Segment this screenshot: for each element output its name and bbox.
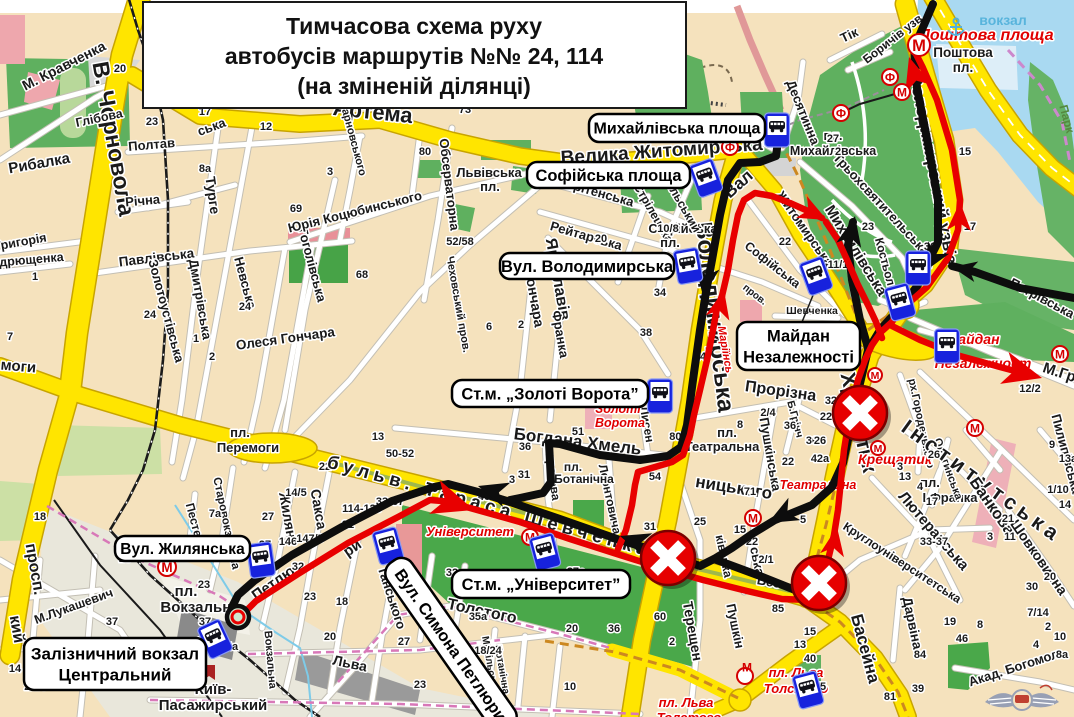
- svg-text:34: 34: [654, 287, 667, 299]
- svg-text:18: 18: [34, 511, 46, 523]
- svg-text:2: 2: [1045, 621, 1051, 633]
- svg-text:Михайлівська площа: Михайлівська площа: [594, 121, 761, 138]
- svg-text:Вул. Володимирська: Вул. Володимирська: [501, 258, 674, 276]
- svg-text:8а: 8а: [1056, 649, 1069, 661]
- svg-text:пл.: пл.: [717, 425, 737, 440]
- svg-text:60: 60: [654, 611, 666, 623]
- svg-text:21: 21: [1002, 513, 1014, 525]
- svg-text:10/8: 10/8: [657, 223, 678, 235]
- svg-text:пл.: пл.: [175, 583, 198, 600]
- svg-text:30: 30: [1026, 581, 1038, 593]
- svg-text:Вул. Жилянська: Вул. Жилянська: [120, 541, 245, 558]
- svg-text:23: 23: [304, 591, 316, 603]
- svg-text:69: 69: [290, 203, 302, 215]
- svg-text:пл.: пл.: [920, 475, 940, 490]
- svg-text:2/1: 2/1: [758, 554, 773, 566]
- svg-text:38: 38: [640, 327, 652, 339]
- svg-text:2: 2: [518, 319, 524, 331]
- svg-text:М: М: [970, 421, 980, 435]
- svg-text:50-52: 50-52: [386, 448, 414, 460]
- svg-text:Незалежності: Незалежності: [743, 348, 854, 366]
- svg-text:Річна: Річна: [125, 191, 162, 209]
- svg-text:1/10: 1/10: [1047, 484, 1068, 496]
- svg-text:24: 24: [239, 301, 252, 313]
- svg-text:3: 3: [509, 474, 515, 486]
- svg-text:31: 31: [518, 469, 530, 481]
- svg-text:3: 3: [327, 166, 333, 178]
- svg-text:15: 15: [804, 626, 816, 638]
- svg-text:42а: 42а: [811, 453, 830, 465]
- svg-text:23: 23: [198, 579, 210, 591]
- svg-text:13: 13: [794, 639, 806, 651]
- svg-text:Майдан: Майдан: [767, 327, 830, 345]
- svg-text:20: 20: [114, 63, 126, 75]
- svg-text:80: 80: [419, 146, 431, 158]
- svg-text:7а: 7а: [209, 508, 222, 520]
- svg-text:12: 12: [260, 121, 272, 133]
- svg-text:14: 14: [9, 663, 22, 675]
- svg-text:36: 36: [784, 420, 796, 432]
- svg-text:33-37: 33-37: [920, 536, 948, 548]
- svg-text:19: 19: [944, 616, 956, 628]
- svg-text:Толстого: Толстого: [657, 710, 721, 717]
- svg-text:М: М: [742, 660, 752, 674]
- svg-text:3: 3: [987, 531, 993, 543]
- svg-text:Тимчасова схема руху: Тимчасова схема руху: [286, 13, 542, 39]
- svg-text:37: 37: [106, 616, 118, 628]
- svg-text:36: 36: [519, 441, 531, 453]
- svg-text:20: 20: [595, 233, 607, 245]
- svg-text:Поштова: Поштова: [933, 45, 993, 60]
- svg-text:Пасажирський: Пасажирський: [159, 697, 268, 714]
- svg-text:27: 27: [398, 636, 410, 648]
- svg-text:40: 40: [804, 653, 816, 665]
- svg-text:8а: 8а: [199, 163, 212, 175]
- svg-text:Театральна: Театральна: [685, 439, 760, 454]
- svg-text:(на зміненій ділянці): (на зміненій ділянці): [297, 73, 531, 99]
- svg-text:2: 2: [669, 636, 675, 648]
- svg-text:14: 14: [1059, 499, 1072, 511]
- svg-text:81: 81: [884, 691, 896, 703]
- svg-text:20: 20: [1044, 571, 1056, 583]
- svg-text:пл.: пл.: [480, 179, 500, 194]
- svg-text:10: 10: [1054, 631, 1066, 643]
- svg-text:46: 46: [956, 633, 968, 645]
- svg-text:14/5: 14/5: [285, 487, 306, 499]
- svg-text:22: 22: [820, 411, 832, 423]
- svg-text:2/4: 2/4: [760, 407, 776, 419]
- svg-text:М: М: [748, 511, 758, 525]
- svg-text:27: 27: [262, 511, 274, 523]
- svg-text:18: 18: [336, 596, 348, 608]
- svg-text:54: 54: [649, 471, 662, 483]
- svg-text:Ф: Ф: [885, 70, 895, 84]
- svg-text:М: М: [897, 85, 907, 99]
- svg-text:22: 22: [782, 456, 794, 468]
- svg-text:М: М: [874, 443, 883, 455]
- svg-text:23: 23: [414, 679, 426, 691]
- svg-text:Ст.м. „Золоті Ворота”: Ст.м. „Золоті Ворота”: [461, 385, 638, 403]
- svg-text:Ворота: Ворота: [595, 416, 645, 430]
- svg-text:27: 27: [827, 133, 839, 145]
- svg-text:М: М: [912, 37, 926, 55]
- svg-text:М: М: [1055, 347, 1065, 361]
- svg-text:68: 68: [356, 269, 368, 281]
- svg-text:Театральна: Театральна: [780, 478, 857, 492]
- svg-text:Софійська площа: Софійська площа: [535, 167, 682, 185]
- svg-text:11: 11: [1004, 531, 1016, 543]
- svg-text:7: 7: [7, 331, 13, 343]
- svg-text:23: 23: [146, 116, 158, 128]
- svg-text:пл.: пл.: [953, 60, 973, 75]
- svg-text:35а: 35а: [469, 611, 488, 623]
- svg-text:М: М: [871, 370, 880, 382]
- svg-text:31: 31: [644, 521, 656, 533]
- svg-text:15: 15: [959, 146, 971, 158]
- svg-text:52/58: 52/58: [446, 236, 474, 248]
- svg-text:1: 1: [32, 271, 38, 283]
- svg-text:15: 15: [734, 524, 746, 536]
- svg-text:пл.: пл.: [230, 425, 250, 440]
- svg-text:6: 6: [486, 321, 492, 333]
- svg-text:моги: моги: [0, 357, 37, 377]
- svg-text:Шевченка: Шевченка: [786, 305, 838, 317]
- svg-text:пл. Льва: пл. Льва: [659, 695, 714, 710]
- svg-text:36: 36: [608, 623, 620, 635]
- svg-text:1: 1: [193, 333, 199, 345]
- svg-text:вокзал: вокзал: [979, 12, 1026, 28]
- svg-text:4: 4: [1033, 639, 1040, 651]
- svg-text:9: 9: [1049, 439, 1055, 451]
- svg-text:Михайлівська: Михайлівська: [790, 144, 877, 158]
- svg-text:22: 22: [779, 236, 791, 248]
- svg-text:71: 71: [744, 486, 756, 498]
- svg-text:автобусів маршрутів №№ 24, 114: автобусів маршрутів №№ 24, 114: [225, 43, 604, 69]
- svg-text:26: 26: [928, 449, 940, 461]
- svg-text:7/14: 7/14: [1027, 607, 1049, 619]
- svg-text:12/2: 12/2: [1019, 383, 1040, 395]
- svg-text:Залізничний вокзал: Залізничний вокзал: [31, 644, 199, 663]
- svg-text:Перемоги: Перемоги: [217, 440, 279, 455]
- svg-text:пл.: пл.: [660, 235, 680, 250]
- svg-text:13: 13: [899, 471, 911, 483]
- svg-text:17: 17: [926, 496, 938, 508]
- svg-text:13: 13: [372, 431, 384, 443]
- svg-text:8: 8: [977, 619, 983, 631]
- svg-text:Ф: Ф: [836, 106, 846, 120]
- svg-text:23: 23: [862, 221, 874, 233]
- svg-text:51: 51: [572, 426, 584, 438]
- svg-text:Центральний: Центральний: [59, 665, 172, 684]
- svg-text:Ст.м. „Університет”: Ст.м. „Університет”: [462, 576, 621, 594]
- svg-text:2: 2: [209, 351, 215, 363]
- svg-text:146: 146: [279, 536, 297, 548]
- svg-text:20: 20: [324, 631, 336, 643]
- svg-text:25: 25: [694, 516, 706, 528]
- svg-text:Університет: Університет: [426, 524, 514, 539]
- svg-text:84: 84: [914, 649, 927, 661]
- svg-text:18/24: 18/24: [474, 645, 502, 657]
- svg-text:Львівська: Львівська: [456, 165, 522, 180]
- svg-text:Поштова площа: Поштова площа: [918, 27, 1053, 44]
- svg-text:10: 10: [564, 681, 576, 693]
- svg-text:85: 85: [772, 603, 784, 615]
- svg-text:24: 24: [144, 309, 157, 321]
- svg-text:Ботанічна: Ботанічна: [554, 472, 614, 486]
- svg-text:20: 20: [566, 623, 578, 635]
- svg-text:8: 8: [737, 419, 743, 431]
- svg-text:2: 2: [835, 146, 841, 158]
- svg-text:39: 39: [912, 683, 924, 695]
- svg-text:5: 5: [800, 514, 806, 526]
- svg-text:4: 4: [917, 481, 924, 493]
- svg-text:13а: 13а: [1059, 453, 1074, 465]
- svg-text:Крещатик: Крещатик: [858, 451, 933, 467]
- svg-text:26: 26: [814, 435, 826, 447]
